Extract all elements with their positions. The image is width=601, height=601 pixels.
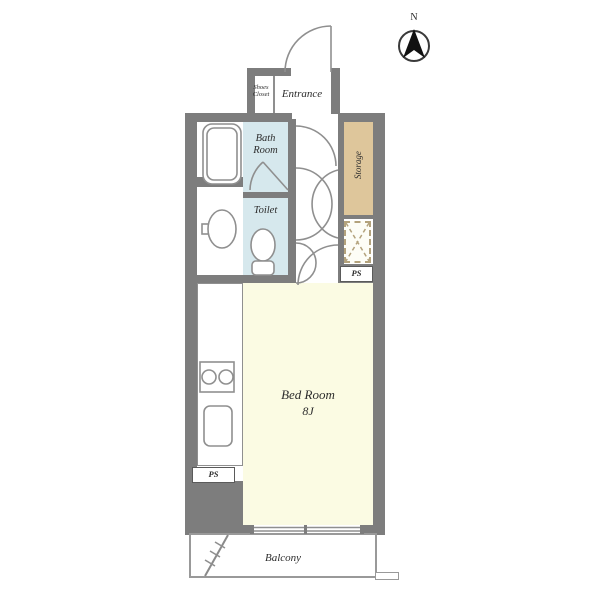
ps-upper-box: PS xyxy=(340,266,373,282)
bath-room-label: Bath Room xyxy=(243,133,288,157)
stove-icon xyxy=(200,362,234,392)
toilet-bowl-icon xyxy=(251,229,275,261)
bathtub-icon xyxy=(203,124,241,184)
entrance-label: Entrance xyxy=(272,88,332,101)
bed-room-label: Bed Room xyxy=(243,388,373,403)
toilet-label: Toilet xyxy=(243,205,288,217)
shoes-closet-label: Shoes Closet xyxy=(248,84,274,99)
corridor-door-arc xyxy=(312,170,338,238)
storage-label: Storage xyxy=(353,120,363,210)
window-mullion xyxy=(304,525,307,534)
bed-room-size-label: 8J xyxy=(243,405,373,419)
toilet-base-icon xyxy=(252,261,274,275)
bath-door-leaf xyxy=(263,162,288,190)
balcony-label: Balcony xyxy=(189,552,377,565)
ps-lower-label: PS xyxy=(209,470,219,480)
sink-icon xyxy=(204,406,232,446)
entrance-door-arc xyxy=(285,26,331,72)
washbasin-icon xyxy=(208,210,236,248)
bath-door-arc xyxy=(250,162,263,190)
window-cap xyxy=(250,525,254,534)
corridor-door-arc xyxy=(296,126,336,166)
corridor-door-arc xyxy=(298,245,338,285)
ps-lower-box: PS xyxy=(192,467,235,483)
window-cap xyxy=(360,525,364,534)
compass-north-label: N xyxy=(407,12,421,24)
ps-upper-label: PS xyxy=(352,269,362,279)
corridor-door-arc xyxy=(296,168,332,240)
floor-plan: N Shoes Closet Entrance Bath Room Toilet… xyxy=(0,0,601,601)
